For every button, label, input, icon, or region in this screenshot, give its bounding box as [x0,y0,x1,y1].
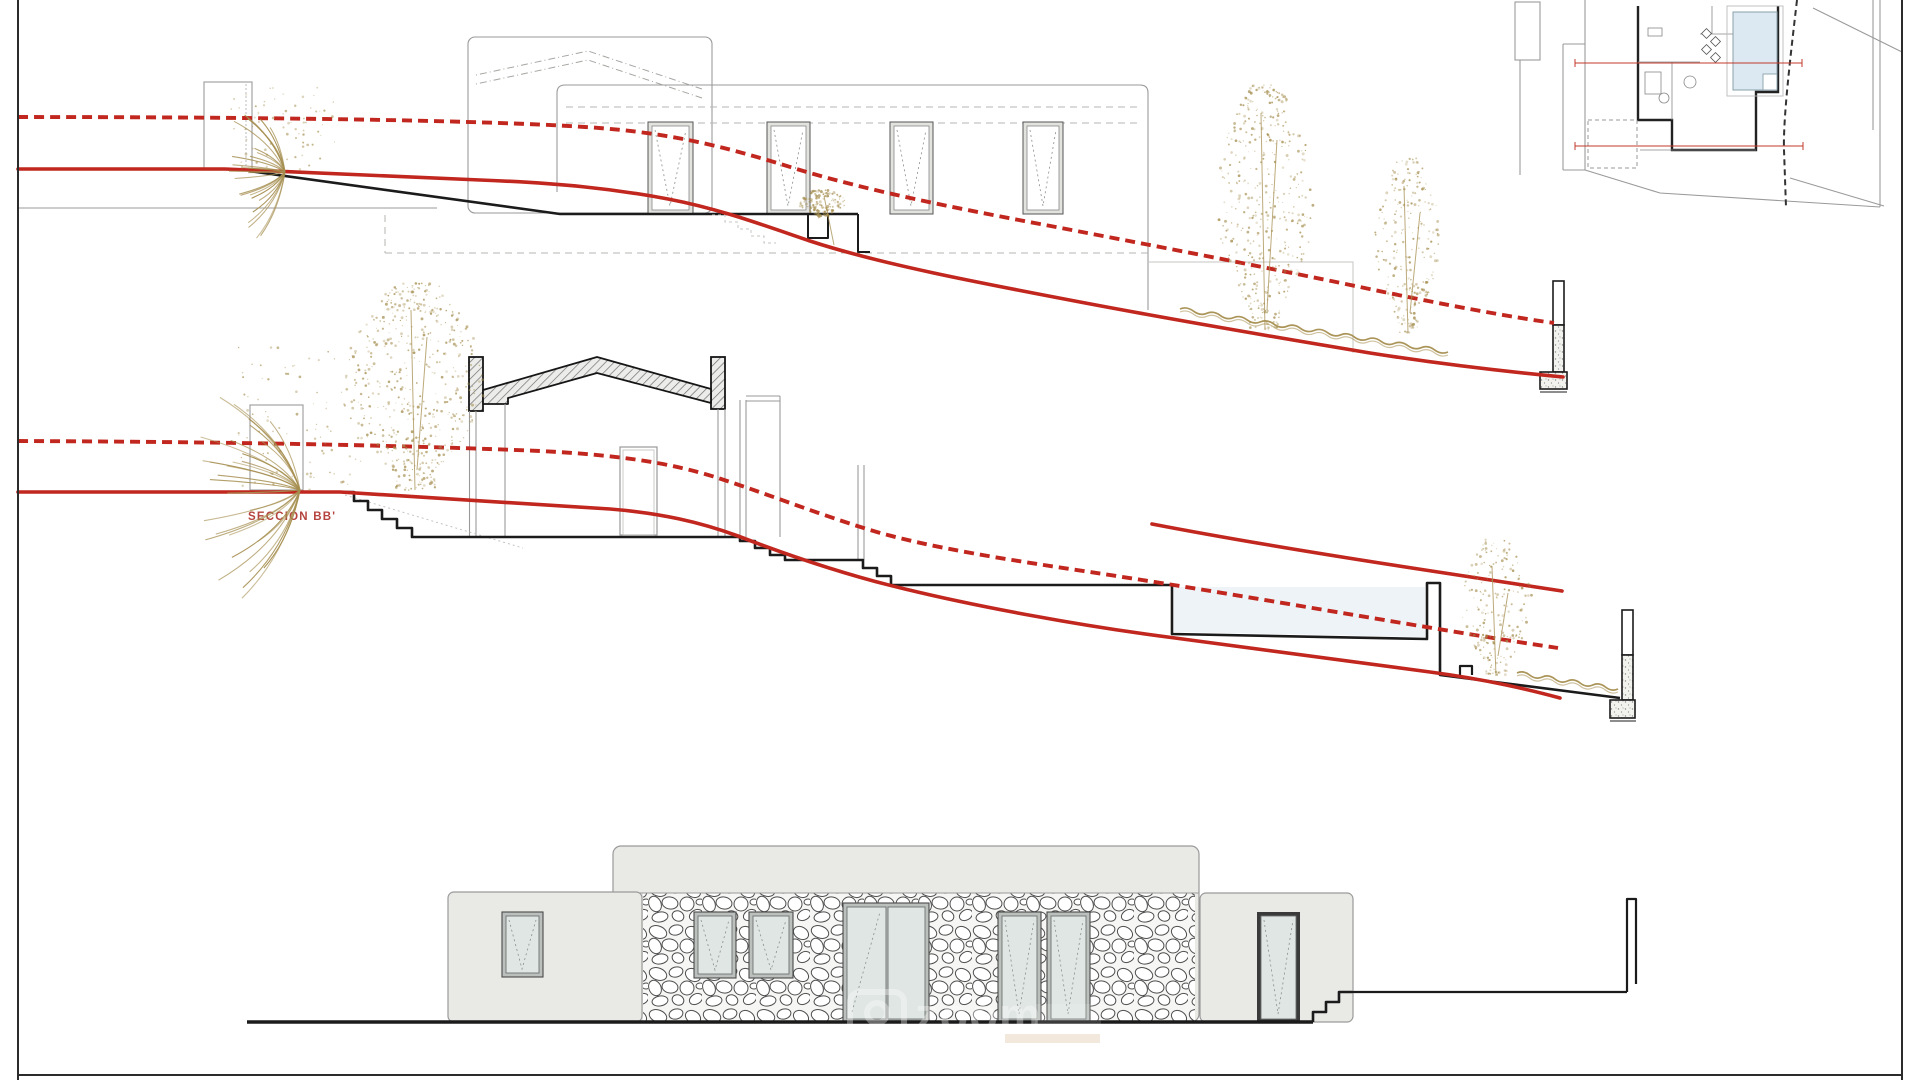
slab-edge-drop [858,214,870,252]
retaining-wall-section-bb [1610,610,1636,721]
left-volume [448,892,642,1022]
watermark-subtext [1005,1034,1100,1043]
window-icon [502,912,543,977]
roof-section [469,357,725,411]
plot-boundary-dashed [1784,0,1797,207]
glass-door-icon [1257,912,1300,1022]
pool-elevation-outline [1148,262,1353,353]
window-icon [694,912,736,978]
shrub-mid-left [201,346,363,598]
section-walls [470,396,865,560]
deck-step-block [1460,666,1472,675]
drawing-canvas: SECCIÓN BB' [0,0,1920,1080]
tree-top-right-1 [1217,84,1314,330]
architectural-sheet: SECCIÓN BB' [0,0,1920,1080]
pool-water-section [1174,587,1425,637]
garage-dashed-plan [1588,120,1637,168]
boundary-pillar [204,82,252,170]
gable-roof-line-2 [476,60,702,98]
tree-mid-right [1462,539,1533,677]
terrace-profile [340,492,1620,698]
window-icon [1023,122,1063,214]
tree-mid-left [345,282,484,491]
top-windows [648,122,1063,214]
window-icon [749,912,793,978]
site-plan-inset [1515,0,1902,207]
watermark-text: zoom [915,988,1042,1041]
boundary-wall-profile [1627,899,1636,992]
gable-roof-line [476,51,702,89]
tree-top-right-2 [1374,157,1439,333]
shrub-top-left [229,87,335,238]
far-grade-solid-bb [1152,524,1562,591]
watermark-text-tail [1035,1004,1101,1028]
